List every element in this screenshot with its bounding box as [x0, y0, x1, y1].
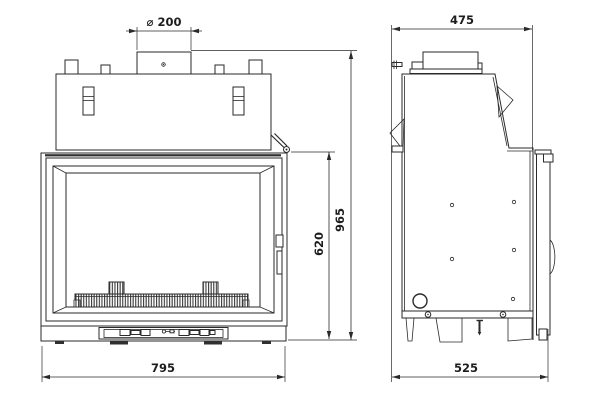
dim-label-overall-height: 965 — [333, 208, 347, 232]
latch-lever — [271, 134, 290, 153]
front-elevation — [41, 52, 290, 345]
side-body — [402, 74, 533, 311]
door-panel-side — [537, 154, 551, 335]
door-glass — [66, 173, 260, 307]
grate-block — [109, 282, 124, 294]
dim-label-overall-width: 795 — [151, 361, 175, 375]
side-elevation — [390, 25, 555, 382]
foot — [110, 341, 128, 345]
air-slot-left — [83, 87, 94, 115]
flue-collar-side — [423, 52, 478, 69]
top-tab — [101, 65, 110, 74]
dim-flue-diameter: ⌀ 200 — [126, 15, 202, 50]
top-tab — [65, 60, 78, 74]
foot — [262, 341, 271, 344]
side-door-column — [533, 25, 555, 340]
dim-door-height: 620 — [291, 152, 335, 339]
top-tab — [249, 60, 262, 74]
dim-label-top-depth: 475 — [450, 13, 474, 27]
dim-top-depth: 475 — [392, 13, 532, 31]
top-tab — [215, 65, 224, 74]
air-control-right — [179, 330, 215, 336]
door-top-cap — [535, 150, 551, 154]
collar-step — [412, 62, 423, 69]
back-hinge-foot — [392, 146, 403, 152]
hinge-block — [544, 154, 554, 162]
air-slot-right — [233, 87, 244, 115]
foot — [55, 341, 64, 344]
technical-drawing: ⌀ 200 795 965 620 — [0, 0, 600, 400]
dim-label-flue-diameter: ⌀ 200 — [147, 15, 182, 29]
front-foot — [539, 329, 547, 340]
foot — [204, 341, 222, 345]
door-handle-lower — [277, 251, 282, 274]
dim-label-door-height: 620 — [312, 232, 326, 256]
back-bracket — [392, 61, 402, 70]
collar-screw-dot — [163, 64, 164, 65]
drawing-svg: ⌀ 200 795 965 620 — [0, 0, 600, 400]
grate-block — [203, 282, 218, 294]
collar-tab — [478, 63, 482, 69]
door-handle-upper — [276, 235, 283, 247]
legs — [406, 318, 532, 342]
door-handle-side — [550, 240, 555, 274]
dim-overall-width: 795 — [42, 346, 285, 382]
collar-flange — [410, 69, 482, 74]
dim-base-depth: 525 — [392, 329, 548, 382]
bottom-rail — [402, 311, 533, 318]
dim-label-base-depth: 525 — [454, 361, 478, 375]
air-control-left — [120, 330, 150, 336]
base-band — [41, 326, 286, 341]
door-top-edge — [45, 154, 281, 156]
